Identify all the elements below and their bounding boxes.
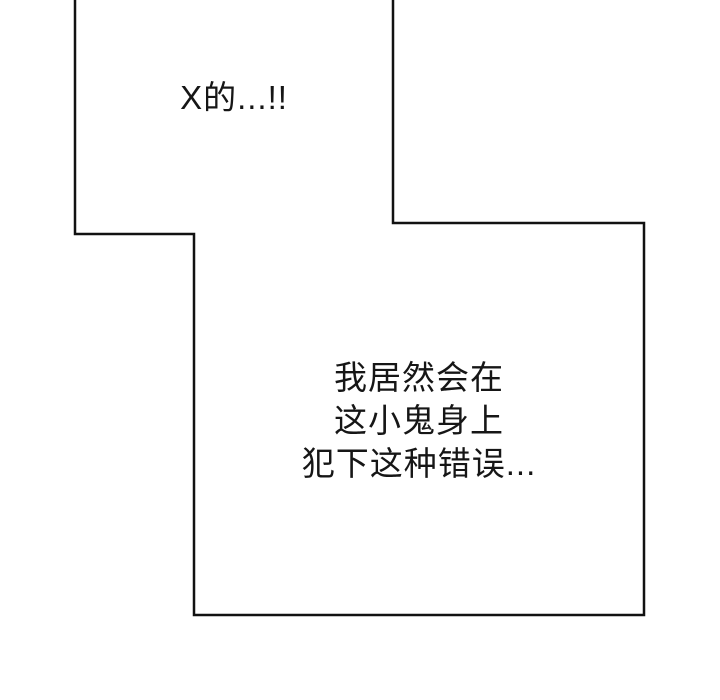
speech-text-top: X的...!! [75,78,393,118]
speech-line: 我居然会在 [194,356,644,399]
speech-line: 这小鬼身上 [194,399,644,442]
speech-text-bottom: 我居然会在 这小鬼身上 犯下这种错误... [194,356,644,485]
speech-line: 犯下这种错误... [194,442,644,485]
comic-page: X的...!! 我居然会在 这小鬼身上 犯下这种错误... [0,0,720,700]
